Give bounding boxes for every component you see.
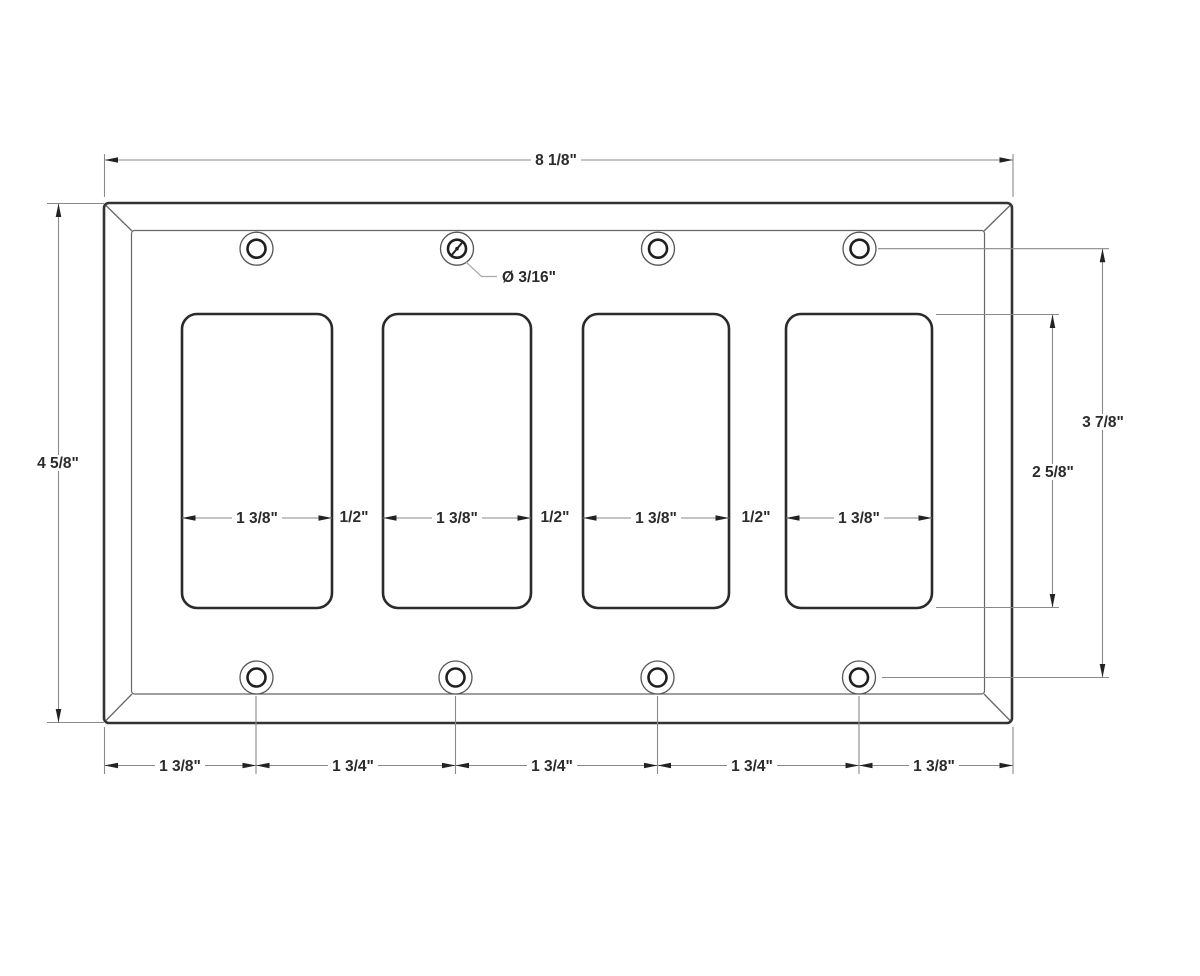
svg-text:1/2": 1/2" <box>541 509 570 526</box>
svg-text:1 3/8": 1 3/8" <box>635 510 677 527</box>
svg-text:1 3/8": 1 3/8" <box>159 758 201 775</box>
svg-text:1 3/8": 1 3/8" <box>436 510 478 527</box>
svg-text:1 3/4": 1 3/4" <box>531 758 573 775</box>
svg-text:3 7/8": 3 7/8" <box>1082 414 1124 431</box>
svg-text:1 3/4": 1 3/4" <box>731 758 773 775</box>
svg-text:1 3/8": 1 3/8" <box>236 510 278 527</box>
svg-text:4 5/8": 4 5/8" <box>37 455 79 472</box>
svg-text:Ø 3/16": Ø 3/16" <box>502 269 556 286</box>
svg-text:2 5/8": 2 5/8" <box>1032 464 1074 481</box>
svg-text:1 3/8": 1 3/8" <box>913 758 955 775</box>
svg-text:1 3/8": 1 3/8" <box>838 510 880 527</box>
svg-text:1/2": 1/2" <box>742 509 771 526</box>
svg-text:8 1/8": 8 1/8" <box>535 152 577 169</box>
svg-text:1/2": 1/2" <box>340 509 369 526</box>
svg-text:1 3/4": 1 3/4" <box>332 758 374 775</box>
